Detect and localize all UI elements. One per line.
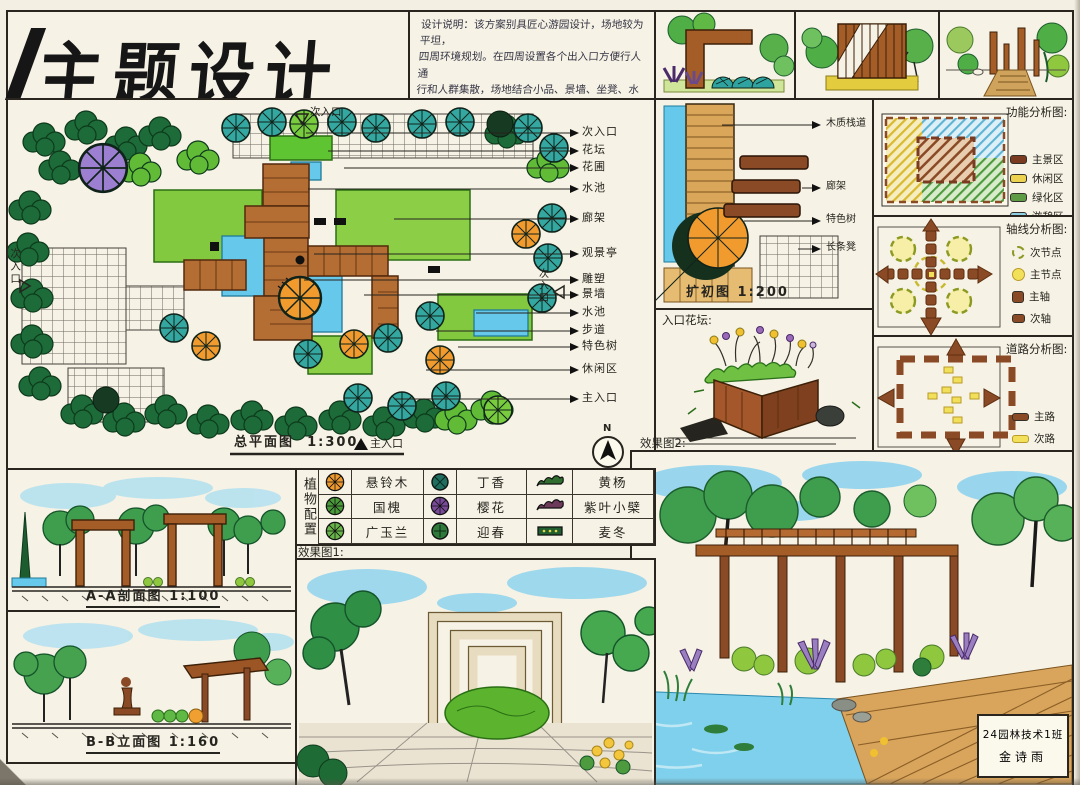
axis-label: 主轴 [1029,289,1050,304]
design-notes-panel: 设计说明：该方案别具匠心游园设计，场地较为平坦， 四周环境规划。在四周设置各个出… [408,10,656,100]
plant-symbol-yingchun [424,519,457,544]
plan-callout-label: 廊架 [582,212,606,225]
detail-plan-drawing [656,100,872,308]
plant-legend-panel: 植物配置 悬铃木 丁香 黄杨 国槐 樱花 紫叶小檗 广玉兰 迎春 麦冬 [295,468,656,546]
sketch-panel-trellis [794,10,940,100]
plant-name: 黄杨 [573,470,654,495]
axis-label: 主节点 [1030,267,1062,282]
master-plan-panel: 次入口 次入口 次入口 次入口 花坛 花圃 水池 廊架 观景亭 雕塑 景墙 水池… [6,98,656,470]
plan-callout-label: 休闲区 [582,363,618,376]
plant-table-header: 植物配置 [297,470,319,544]
north-label: N [603,423,611,435]
plan-entrance-left-label: 次入口 [9,248,21,286]
function-legend-item: 主景区 [1010,152,1064,167]
north-arrow-icon [593,437,623,467]
plant-symbol-huangyang [527,470,573,495]
road-diagram-title: 道路分析图: [1006,343,1067,356]
zone-label: 绿化区 [1032,190,1064,205]
plan-callout-label: 观景亭 [582,247,618,260]
plant-name: 丁香 [457,470,527,495]
elevation-bb-caption-text: B-B立面图 [86,735,162,750]
sketch-panel-wall [654,10,796,100]
secondary-node-symbol [1012,246,1025,259]
axis-diagram-title: 轴线分析图: [1006,223,1067,236]
detail-plan-caption: 扩初图 1:200 [686,286,789,301]
road-legend-item: 次路 [1012,431,1055,446]
signature-name: 金诗雨 [999,748,1047,765]
section-aa-scale: 1:100 [169,589,220,604]
plan-callout-label: 步道 [582,324,606,337]
zone-label: 主景区 [1032,152,1064,167]
plant-symbol-maidong [527,519,573,544]
render1-perspective-drawing [297,560,654,785]
axis-label: 次轴 [1030,311,1051,326]
secondary-axis-symbol [1012,314,1025,323]
detail-plan-caption-text: 扩初图 [686,285,731,300]
plant-symbol-ziyexiaobo [527,495,573,520]
main-node-symbol [1012,268,1025,281]
plant-symbol-dingxiang [424,470,457,495]
section-aa-caption-text: A-A剖面图 [86,589,163,604]
plant-name: 麦冬 [573,519,654,544]
elevation-bb-panel: B-B立面图 1:160 [6,610,297,764]
plant-name: 悬铃木 [352,470,424,495]
plant-name: 樱花 [457,495,527,520]
signature-box: 24园林技术1班 金诗雨 [977,714,1069,778]
main-road-symbol [1012,413,1029,421]
road-diagram-panel: 道路分析图: 主路 次路 [872,335,1074,457]
leader-arrow-icons [570,129,579,403]
master-plan-caption-text: 总平面图 [234,435,294,450]
detail-plan-panel: 木质栈道 廊架 特色树 长条凳 扩初图 1:200 [654,98,874,310]
render2-label: 效果图2: [640,437,686,450]
function-diagram-panel: 功能分析图: 主景区 休闲区 绿化区 游憩区 [872,98,1074,217]
road-label: 主路 [1034,409,1055,424]
detail-plan-scale: 1:200 [738,285,789,300]
wood-posts-sketch [940,12,1072,98]
section-aa-caption: A-A剖面图 1:100 [86,590,220,608]
axis-legend-item: 次节点 [1012,245,1062,260]
detail-callout-label: 廊架 [826,181,846,193]
plan-callout-label: 主入口 [582,392,618,405]
render1-label: 效果图1: [298,546,344,559]
render1-panel [295,558,656,785]
axis-legend-item: 次轴 [1012,311,1062,326]
detail-callout-label: 长条凳 [826,242,856,254]
elevation-bb-caption: B-B立面图 1:160 [86,736,220,754]
function-legend-item: 休闲区 [1010,171,1064,186]
plant-symbol-xuanlingmu [319,470,352,495]
plan-callout-label: 特色树 [582,340,618,353]
master-plan-scale: 1:300 [307,435,358,450]
master-plan-caption: 总平面图 1:300 [234,436,358,451]
function-diagram-title: 功能分析图: [1006,106,1067,119]
plan-callout-label: 景墙 [582,288,606,301]
plant-symbol-guohuai [319,495,352,520]
zone-leisure-swatch [1010,174,1027,183]
render2-panel: 24园林技术1班 金诗雨 [630,450,1074,785]
plant-symbol-guangyulan [319,519,352,544]
entry-bed-panel: 入口花坛: [654,308,874,452]
notes-line: 设计说明：该方案别具匠心游园设计，场地较为平坦， [419,17,653,49]
zone-main-swatch [1010,155,1027,164]
road-label: 次路 [1034,431,1055,446]
trellis-sketch [796,12,938,98]
entry-bed-label: 入口花坛: [662,314,712,327]
detail-callout-label: 特色树 [826,214,856,226]
plant-name: 紫叶小檗 [573,495,654,520]
sketch-panel-posts [938,10,1074,100]
section-aa-panel: A-A剖面图 1:100 [6,468,297,612]
elevation-bb-scale: 1:160 [169,735,220,750]
plan-callout-label: 水池 [582,306,606,319]
plan-callout-label: 雕塑 [582,273,606,286]
plan-entrance-right-label: 次入口 [536,268,548,304]
plant-name: 广玉兰 [352,519,424,544]
entry-bed-sketch [656,310,872,450]
plant-name: 迎春 [457,519,527,544]
road-legend-item: 主路 [1012,409,1055,424]
axis-legend-item: 主节点 [1012,267,1062,282]
plant-symbol-yinghua [424,495,457,520]
plan-entrance-top-label: 次入口 [310,106,342,118]
main-entrance-label: 主入口 [370,438,403,451]
master-plan-drawing [8,100,654,468]
presentation-board: 主题设计 设计说明：该方案别具匠心游园设计，场地较为平坦， 四周环境规划。在四周… [0,0,1080,785]
zone-green-swatch [1010,193,1027,202]
notes-line: 四周环境规划。在四周设置各个出入口方便行人通 [417,49,651,81]
signature-class: 24园林技术1班 [983,727,1064,742]
plan-callout-label: 花圃 [582,161,606,174]
secondary-road-symbol [1012,435,1029,443]
function-legend-item: 绿化区 [1010,190,1064,205]
plan-callout-label: 次入口 [582,126,618,139]
plant-name: 国槐 [352,495,424,520]
axis-diagram-panel: 轴线分析图: 次节点 主节点 主轴 次轴 [872,215,1074,337]
landscape-wall-sketch [656,12,794,98]
axis-label: 次节点 [1030,245,1062,260]
title-panel: 主题设计 [6,10,410,100]
plan-callout-label: 水池 [582,182,606,195]
axis-legend-item: 主轴 [1012,289,1062,304]
main-axis-symbol [1012,291,1024,303]
plan-callout-label: 花坛 [582,144,606,157]
zone-label: 休闲区 [1032,171,1064,186]
detail-callout-label: 木质栈道 [826,118,866,130]
